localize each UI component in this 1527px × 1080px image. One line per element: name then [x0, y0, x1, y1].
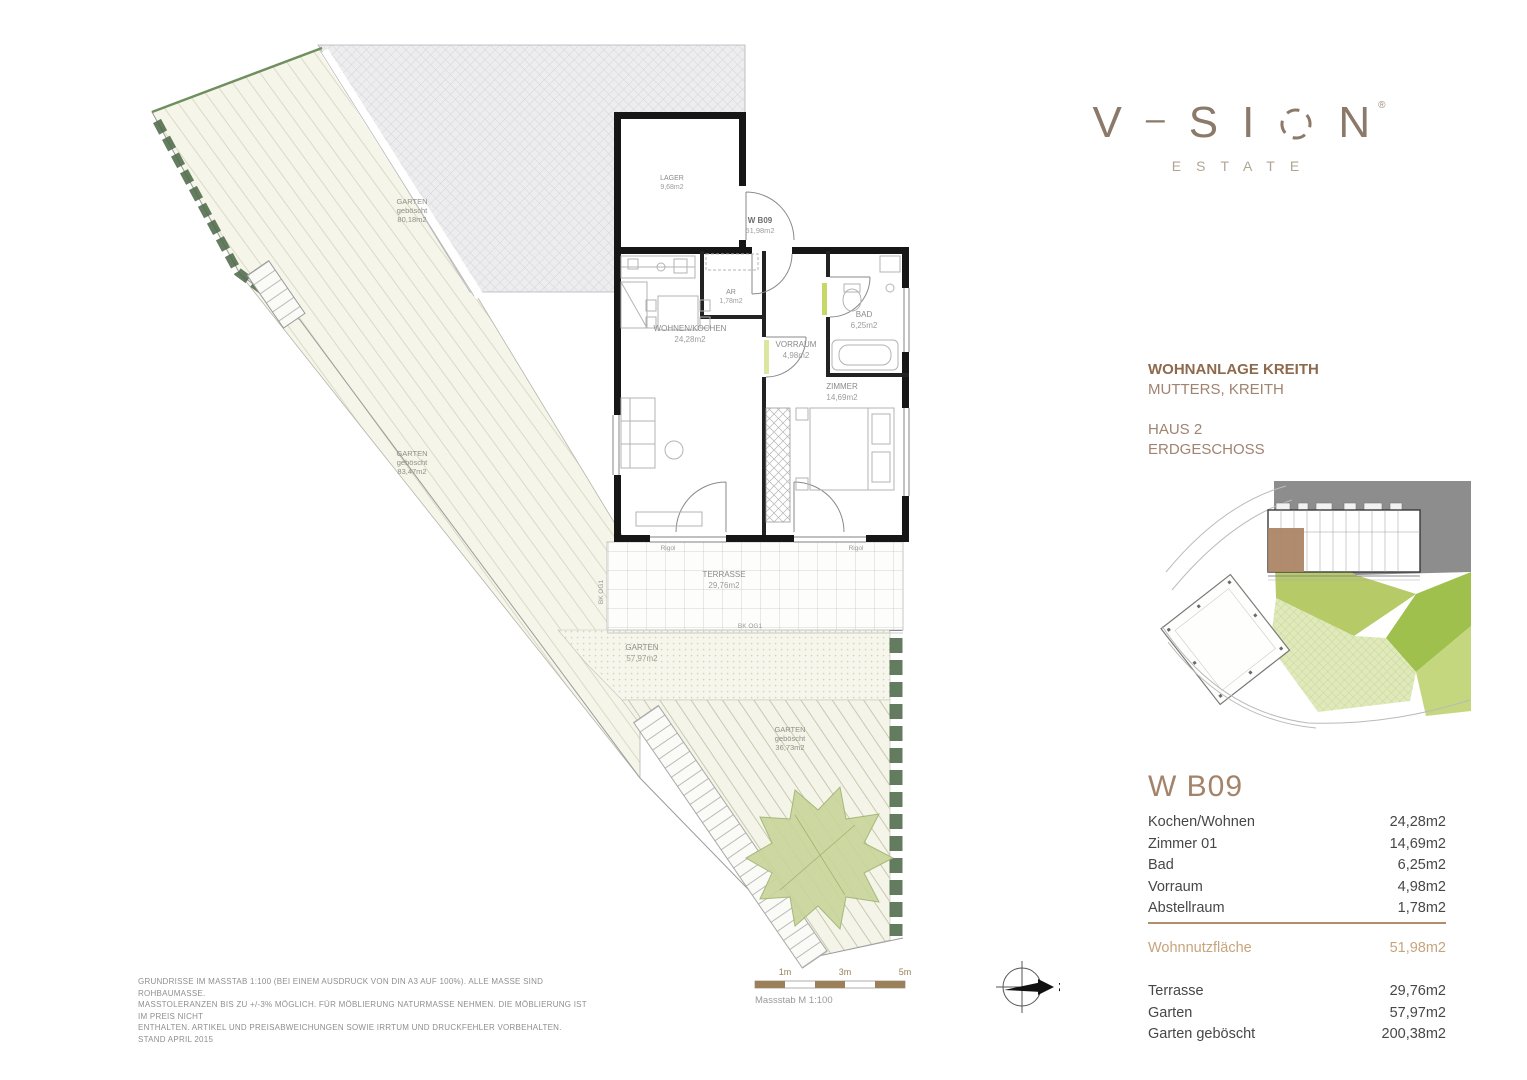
lager-label: LAGER	[660, 175, 684, 182]
rigol-right: Rigol	[849, 545, 864, 552]
row-label: Garten	[1148, 1003, 1192, 1025]
lager-area: 9,68m2	[660, 184, 683, 191]
minimap-haus2	[1268, 503, 1420, 580]
room-vorraum-area: 4,98m2	[783, 351, 810, 360]
total-label: Wohnnutzfläche	[1148, 938, 1252, 960]
row-label: Vorraum	[1148, 877, 1203, 899]
row-label: Abstellraum	[1148, 898, 1225, 920]
row-value: 4,98m2	[1398, 877, 1446, 899]
row-label: Zimmer 01	[1148, 834, 1217, 856]
table-total-row: Wohnnutzfläche51,98m2	[1148, 938, 1446, 960]
unit-tag-area: 51,98m2	[745, 226, 774, 235]
row-label: Bad	[1148, 855, 1174, 877]
garten-area: 57,97m2	[626, 654, 658, 663]
table-row: Zimmer 0114,69m2	[1148, 834, 1446, 856]
svg-text:geböscht: geböscht	[397, 458, 428, 467]
row-value: 29,76m2	[1390, 981, 1446, 1003]
logo-letter-v: V	[1092, 98, 1121, 148]
garten-label: GARTEN	[625, 643, 658, 652]
row-label: Garten geböscht	[1148, 1024, 1255, 1046]
logo-registered-mark: ®	[1378, 100, 1385, 111]
svg-text:36,73m2: 36,73m2	[775, 743, 804, 752]
room-zimmer: ZIMMER	[826, 382, 858, 391]
svg-text:GARTEN: GARTEN	[774, 725, 805, 734]
disclaimer-line: MASSTOLERANZEN BIS ZU +/-3% MÖGLICH. FÜR…	[138, 999, 588, 1022]
table-row: Abstellraum1,78m2	[1148, 898, 1446, 920]
svg-text:GARTEN: GARTEN	[396, 449, 427, 458]
room-wohnen-area: 24,28m2	[674, 335, 706, 344]
minimap-haus1	[1161, 575, 1289, 705]
table-divider	[1148, 922, 1446, 924]
room-bad: BAD	[856, 310, 873, 319]
door-accent-2	[764, 340, 769, 374]
garten-boeschung-1: GARTEN geböscht 80,18m2	[396, 197, 428, 224]
furniture	[621, 254, 900, 526]
room-bad-area: 6,25m2	[851, 321, 878, 330]
minimap-unit-highlight	[1268, 528, 1304, 572]
svg-text:geböscht: geböscht	[775, 734, 806, 743]
row-value: 1,78m2	[1398, 898, 1446, 920]
brand-wordmark: V–SIN®	[1080, 98, 1398, 148]
room-vorraum: VORRAUM	[776, 340, 817, 349]
row-value: 14,69m2	[1390, 834, 1446, 856]
logo-dash: –	[1146, 100, 1165, 139]
table-row: Kochen/Wohnen24,28m2	[1148, 812, 1446, 834]
garten-boeschung-2: GARTEN geböscht 83,47m2	[396, 449, 428, 476]
disclaimer: GRUNDRISSE IM MASSTAB 1:100 (BEI EINEM A…	[138, 976, 588, 1045]
project-title: WOHNANLAGE KREITH	[1148, 360, 1448, 380]
site-plan-minimap	[1158, 476, 1473, 731]
table-row: Bad6,25m2	[1148, 855, 1446, 877]
brand-logo: V–SIN® ESTATE	[1080, 98, 1398, 174]
garten-boeschung-3: GARTEN geböscht 36,73m2	[774, 725, 806, 752]
room-wohnen: WOHNEN/KOCHEN	[654, 324, 727, 333]
terrasse-label: TERRASSE	[702, 570, 745, 579]
room-zimmer-area: 14,69m2	[826, 393, 858, 402]
svg-text:80,18m2: 80,18m2	[397, 215, 426, 224]
logo-letter-i: I	[1242, 98, 1254, 148]
svg-text:GARTEN: GARTEN	[396, 197, 427, 206]
disclaimer-line: GRUNDRISSE IM MASSTAB 1:100 (BEI EINEM A…	[138, 976, 588, 999]
door-accent	[822, 283, 827, 315]
project-house: HAUS 2	[1148, 420, 1448, 440]
table-row: Terrasse29,76m2	[1148, 981, 1446, 1003]
row-value: 24,28m2	[1390, 812, 1446, 834]
disclaimer-line: ENTHALTEN. ARTIKEL UND PREISABWEICHUNGEN…	[138, 1022, 588, 1045]
row-value: 57,97m2	[1390, 1003, 1446, 1025]
svg-text:83,47m2: 83,47m2	[397, 467, 426, 476]
total-value: 51,98m2	[1390, 938, 1446, 960]
logo-letter-n: N	[1338, 98, 1370, 148]
logo-estate: ESTATE	[1088, 158, 1398, 174]
bk-mark-2: BK OG1	[738, 623, 763, 630]
scale-tick-5m: 5m	[899, 967, 912, 977]
table-row: Garten57,97m2	[1148, 1003, 1446, 1025]
unit-id: W B09	[1148, 770, 1446, 804]
logo-o-icon	[1278, 105, 1314, 141]
north-letter: N	[1056, 982, 1060, 992]
table-row: Garten geböscht200,38m2	[1148, 1024, 1446, 1046]
scale-label: Massstab M 1:100	[755, 995, 833, 1006]
scale-bar: 1m 3m 5m Massstab M 1:100	[755, 967, 911, 1006]
outdoor-rows: Terrasse29,76m2 Garten57,97m2 Garten geb…	[1148, 981, 1446, 1046]
rigol-left: Rigol	[661, 545, 676, 552]
terrasse-area: 29,76m2	[708, 581, 740, 590]
row-label: Kochen/Wohnen	[1148, 812, 1255, 834]
table-row: Vorraum4,98m2	[1148, 877, 1446, 899]
project-info: WOHNANLAGE KREITH MUTTERS, KREITH HAUS 2…	[1148, 360, 1448, 460]
svg-text:geböscht: geböscht	[397, 206, 428, 215]
north-arrow: N	[996, 961, 1060, 1013]
project-floor: ERDGESCHOSS	[1148, 440, 1448, 460]
unit-tag: W B09	[748, 216, 773, 225]
row-value: 6,25m2	[1398, 855, 1446, 877]
project-location: MUTTERS, KREITH	[1148, 380, 1448, 400]
row-value: 200,38m2	[1382, 1024, 1447, 1046]
scale-tick-1m: 1m	[779, 967, 792, 977]
terrace	[607, 542, 903, 633]
floor-plan: LAGER 9,68m2 W B09 51,98m2 AR 1,78m2 WOH…	[0, 0, 1060, 1080]
wardrobe	[766, 408, 790, 522]
logo-letter-s: S	[1189, 98, 1218, 148]
room-ar: AR	[726, 289, 736, 296]
bk-mark-1: BK OG1	[598, 580, 605, 605]
scale-tick-3m: 3m	[839, 967, 852, 977]
room-ar-area: 1,78m2	[719, 298, 742, 305]
unit-summary: W B09 Kochen/Wohnen24,28m2 Zimmer 0114,6…	[1148, 770, 1446, 1046]
row-label: Terrasse	[1148, 981, 1204, 1003]
